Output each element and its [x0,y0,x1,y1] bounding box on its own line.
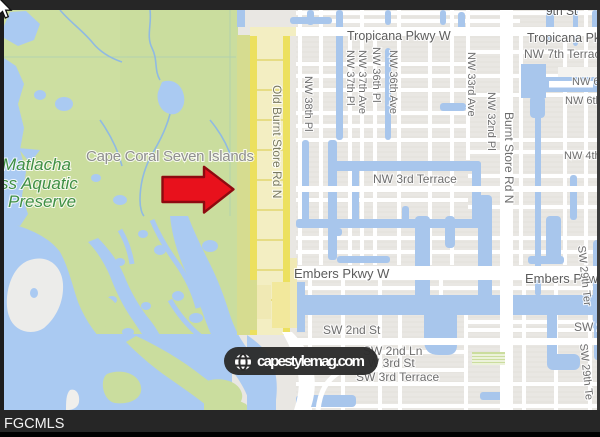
svg-text:Matlacha: Matlacha [2,155,71,174]
svg-text:NW 3rd Terrace: NW 3rd Terrace [373,172,457,186]
svg-text:NW 36th Pl: NW 36th Pl [370,47,382,103]
svg-text:Preserve: Preserve [8,192,76,211]
svg-text:Tropicana Pkwy W: Tropicana Pkwy W [347,29,451,43]
svg-text:NW 4th: NW 4th [564,150,600,162]
svg-text:SW 2: SW 2 [574,320,600,334]
svg-text:Cape Coral Seven Islands: Cape Coral Seven Islands [86,148,254,165]
svg-text:Tropicana Pkw: Tropicana Pkw [527,31,600,45]
svg-text:NW 6t: NW 6t [572,76,600,88]
svg-text:NW 38th Pl: NW 38th Pl [302,76,314,132]
svg-text:NW 7th Terrace: NW 7th Terrace [524,47,600,61]
svg-text:NW 6th: NW 6th [565,95,600,107]
svg-text:Burnt Store Rd N: Burnt Store Rd N [502,112,516,203]
svg-text:Embers Pkwy W: Embers Pkwy W [294,266,390,281]
svg-text:ss Aquatic: ss Aquatic [0,174,78,193]
svg-text:FGCMLS: FGCMLS [4,416,64,432]
svg-text:SW 2nd St: SW 2nd St [323,323,381,337]
svg-text:NW 37th Pl: NW 37th Pl [344,50,356,106]
svg-text:NW 32nd Pl: NW 32nd Pl [485,92,497,151]
svg-text:NW 36th Ave: NW 36th Ave [387,50,399,114]
svg-text:NW 37th Ave: NW 37th Ave [356,50,368,114]
svg-text:capestylemag.com: capestylemag.com [257,353,365,370]
svg-text:Old Burnt Store Rd N: Old Burnt Store Rd N [270,85,284,198]
svg-text:NW 33rd Ave: NW 33rd Ave [465,52,477,117]
